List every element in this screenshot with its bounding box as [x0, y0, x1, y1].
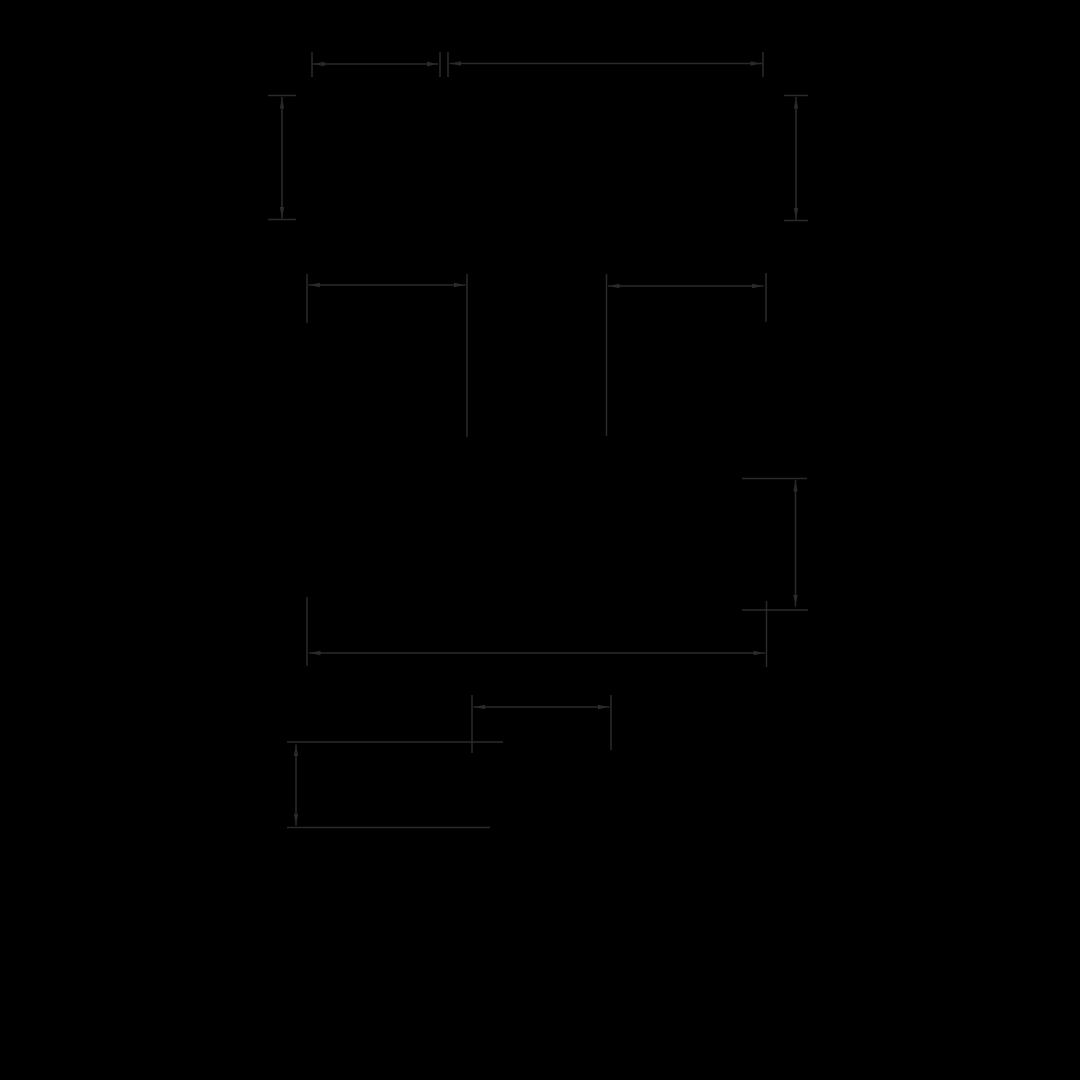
upper-right-height-dimension — [784, 96, 808, 221]
lower-right-height-dimension — [742, 479, 808, 611]
upper-left-height-dimension-arrowhead-down-icon — [280, 207, 284, 218]
bottom-left-height-dimension — [287, 742, 503, 828]
top-width-dimension-right-arrowhead-left-icon — [450, 61, 461, 65]
dimension-drawing-canvas — [0, 0, 1080, 1080]
top-width-dimension-left-arrowhead-right-icon — [427, 62, 438, 66]
overall-width-dimension-arrowhead-right-icon — [754, 651, 765, 655]
overall-width-dimension — [307, 597, 767, 667]
middle-left-width-dimension-arrowhead-right-icon — [454, 283, 465, 287]
middle-left-width-dimension — [307, 274, 467, 437]
upper-right-height-dimension-arrowhead-up-icon — [794, 98, 798, 109]
top-width-dimension-right — [448, 52, 763, 77]
top-width-dimension-right-arrowhead-right-icon — [751, 61, 762, 65]
upper-left-height-dimension — [268, 96, 296, 220]
small-width-dimension — [472, 695, 611, 753]
bottom-left-height-dimension-arrowhead-up-icon — [294, 745, 298, 756]
lower-right-height-dimension-arrowhead-up-icon — [793, 481, 797, 492]
middle-right-width-dimension — [607, 273, 767, 436]
bottom-left-height-dimension-arrowhead-down-icon — [294, 814, 298, 825]
upper-left-height-dimension-arrowhead-up-icon — [280, 98, 284, 109]
middle-right-width-dimension-arrowhead-right-icon — [752, 284, 763, 288]
middle-left-width-dimension-arrowhead-left-icon — [309, 283, 320, 287]
dimension-drawing — [0, 0, 1080, 1080]
middle-right-width-dimension-arrowhead-left-icon — [609, 284, 620, 288]
top-width-dimension-left-arrowhead-left-icon — [314, 62, 325, 66]
upper-right-height-dimension-arrowhead-down-icon — [794, 208, 798, 219]
small-width-dimension-arrowhead-left-icon — [474, 705, 485, 709]
lower-right-height-dimension-arrowhead-down-icon — [793, 595, 797, 606]
small-width-dimension-arrowhead-right-icon — [598, 705, 609, 709]
top-width-dimension-left — [312, 52, 440, 77]
overall-width-dimension-arrowhead-left-icon — [310, 651, 321, 655]
